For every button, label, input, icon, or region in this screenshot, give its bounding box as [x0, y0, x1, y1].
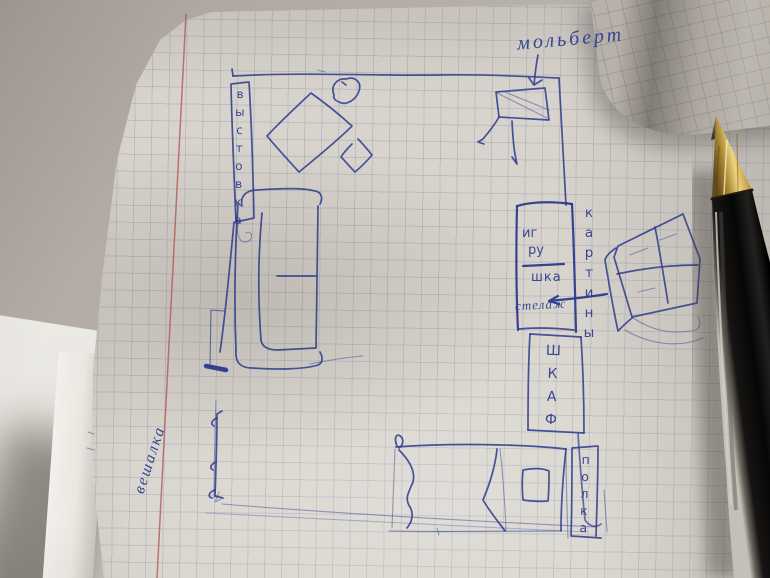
- pen-tip: [711, 116, 752, 199]
- photo-of-notebook-floor-plan: мольберт выстовка картины иг ру шка стел…: [0, 0, 770, 578]
- pen: [0, 0, 770, 578]
